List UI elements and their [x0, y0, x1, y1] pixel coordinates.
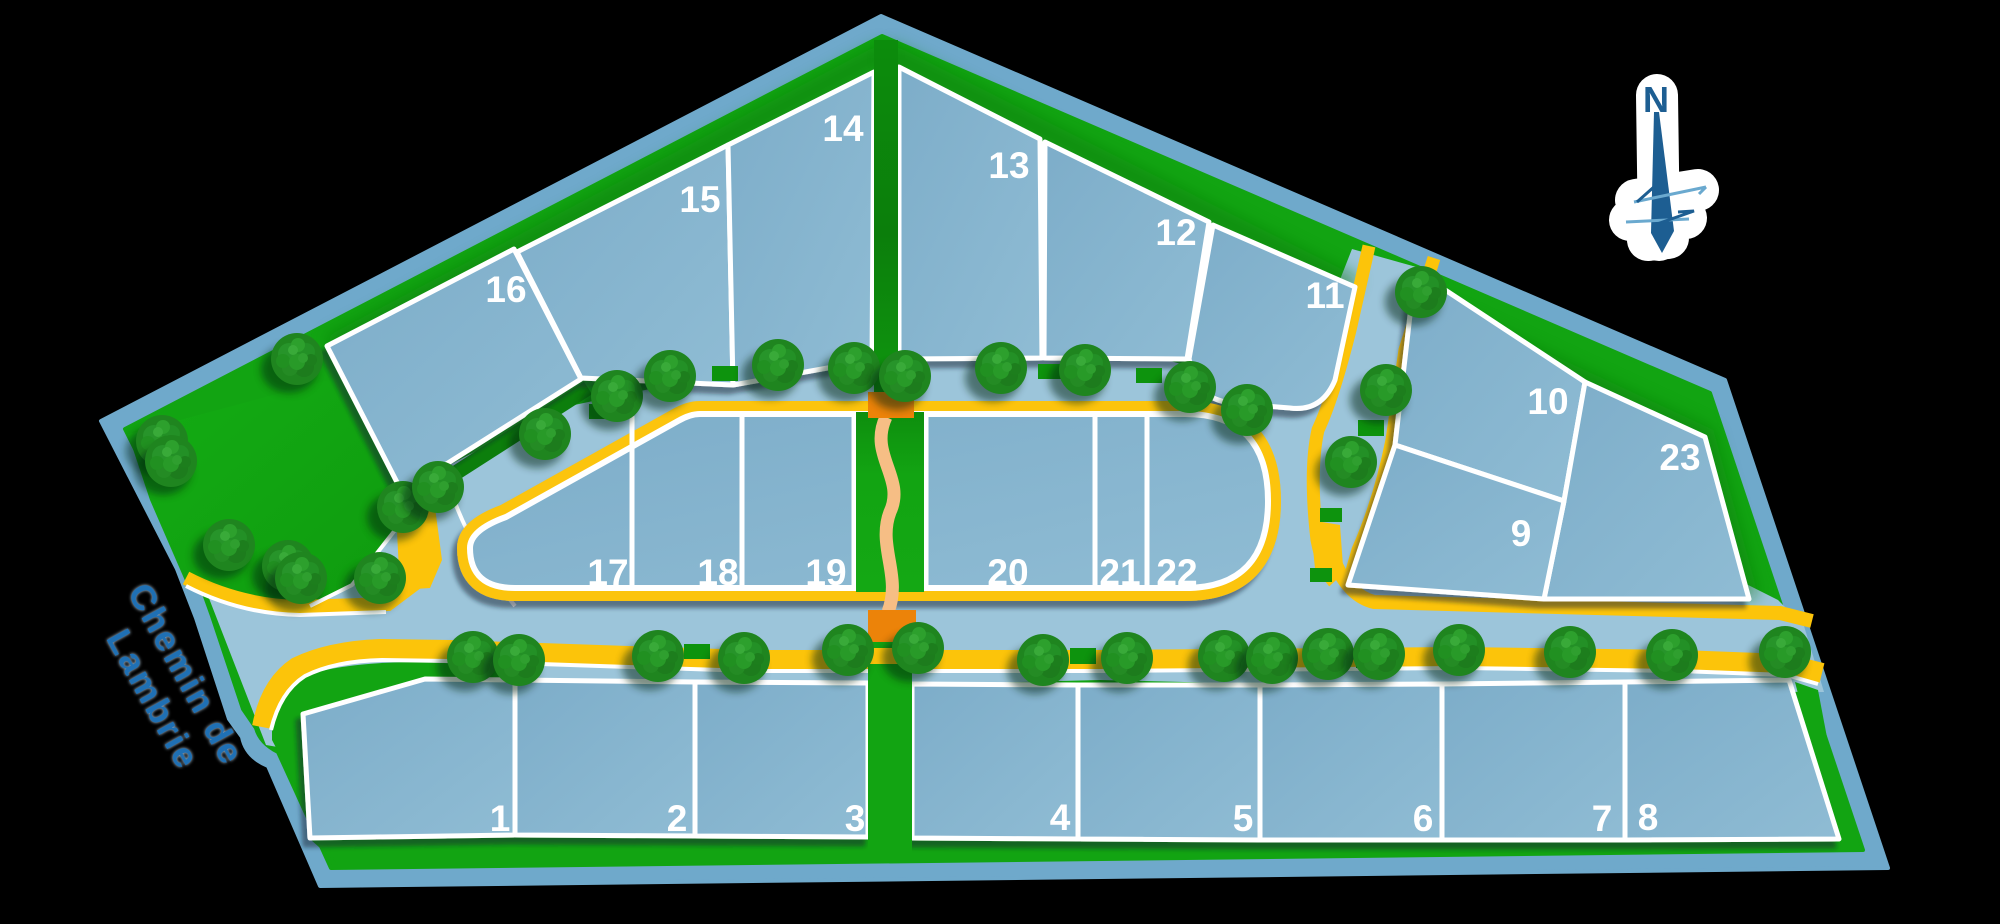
- svg-text:19: 19: [805, 552, 846, 593]
- svg-text:20: 20: [987, 552, 1028, 593]
- svg-text:16: 16: [485, 269, 526, 310]
- svg-text:6: 6: [1413, 798, 1434, 839]
- svg-text:22: 22: [1156, 552, 1197, 593]
- svg-text:18: 18: [697, 552, 738, 593]
- svg-text:3: 3: [845, 798, 866, 839]
- svg-text:10: 10: [1527, 381, 1568, 422]
- svg-text:15: 15: [679, 179, 720, 220]
- svg-text:2: 2: [667, 798, 688, 839]
- svg-text:14: 14: [822, 108, 864, 149]
- svg-text:23: 23: [1659, 437, 1700, 478]
- svg-text:21: 21: [1099, 552, 1140, 593]
- svg-text:7: 7: [1592, 798, 1613, 839]
- svg-text:5: 5: [1233, 798, 1254, 839]
- svg-text:13: 13: [988, 145, 1029, 186]
- svg-text:9: 9: [1511, 513, 1532, 554]
- svg-text:11: 11: [1305, 275, 1344, 316]
- svg-text:1: 1: [490, 798, 511, 839]
- svg-text:12: 12: [1155, 212, 1196, 253]
- svg-text:8: 8: [1638, 797, 1659, 838]
- svg-text:4: 4: [1050, 797, 1071, 838]
- svg-text:17: 17: [587, 552, 628, 593]
